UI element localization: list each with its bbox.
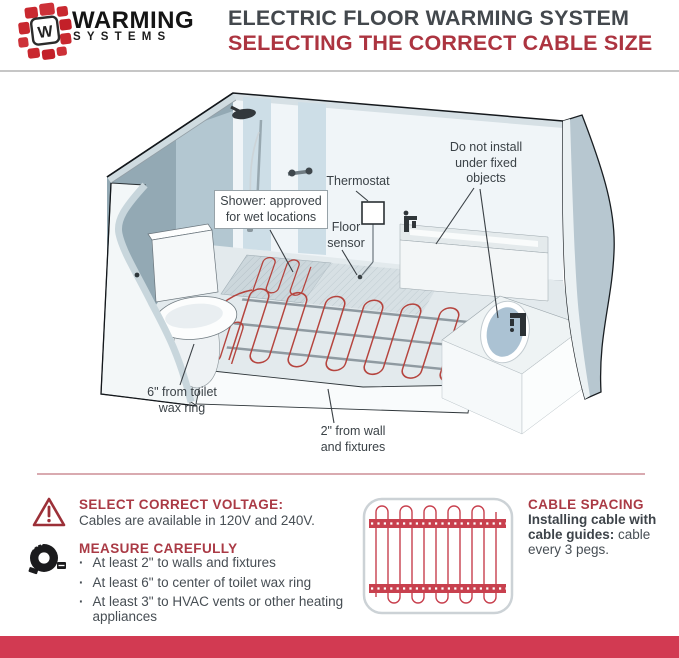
label-floor-sensor: Floor sensor xyxy=(316,220,376,251)
spacing-heading: CABLE SPACING xyxy=(528,497,644,512)
bullet-dot: · xyxy=(79,576,84,591)
wall-bolt xyxy=(135,273,140,278)
measure-heading: MEASURE CAREFULLY xyxy=(79,541,238,556)
cable-guide-strip xyxy=(369,519,506,528)
cable-spacing-illustration xyxy=(362,497,514,615)
bullet-dot: · xyxy=(79,595,84,624)
voltage-body: Cables are available in 120V and 240V. xyxy=(79,513,315,528)
bullet-item: · At least 6" to center of toilet wax ri… xyxy=(79,576,347,591)
floor-sensor-dot xyxy=(358,275,363,280)
label-do-not-install: Do not install under fixed objects xyxy=(434,140,538,187)
label-toilet-clearance: 6" from toilet wax ring xyxy=(130,385,234,416)
voltage-heading: SELECT CORRECT VOLTAGE: xyxy=(79,497,283,512)
page-subtitle: SELECTING THE CORRECT CABLE SIZE xyxy=(228,31,652,56)
page-title: ELECTRIC FLOOR WARMING SYSTEM xyxy=(228,6,629,31)
label-shower: Shower: approved for wet locations xyxy=(214,190,328,229)
warning-icon xyxy=(30,495,68,529)
infographic-page: W WARMING SYSTEMS ELECTRIC FLOOR WARMING… xyxy=(0,0,679,658)
logo-monogram: W xyxy=(37,23,55,42)
bullet-item: · At least 3" to HVAC vents or other hea… xyxy=(79,595,347,624)
warming-systems-logo: W xyxy=(12,2,76,64)
logo-tile-mosaic: W xyxy=(14,2,75,63)
measure-bullet-list: · At least 2" to walls and fixtures · At… xyxy=(79,556,347,629)
footer-bar xyxy=(0,636,679,658)
spacing-body: Installing cable with cable guides: cabl… xyxy=(528,513,678,558)
brand-subname: SYSTEMS xyxy=(73,31,171,43)
bullet-item: · At least 2" to walls and fixtures xyxy=(79,556,347,571)
bathroom-illustration xyxy=(0,72,679,474)
cable-guide-strip xyxy=(369,584,506,593)
bullet-dot: · xyxy=(79,556,84,571)
label-wall-clearance: 2" from wall and fixtures xyxy=(295,424,411,455)
tape-measure-icon xyxy=(25,536,69,580)
label-thermostat: Thermostat xyxy=(321,174,395,190)
section-divider xyxy=(37,473,645,475)
